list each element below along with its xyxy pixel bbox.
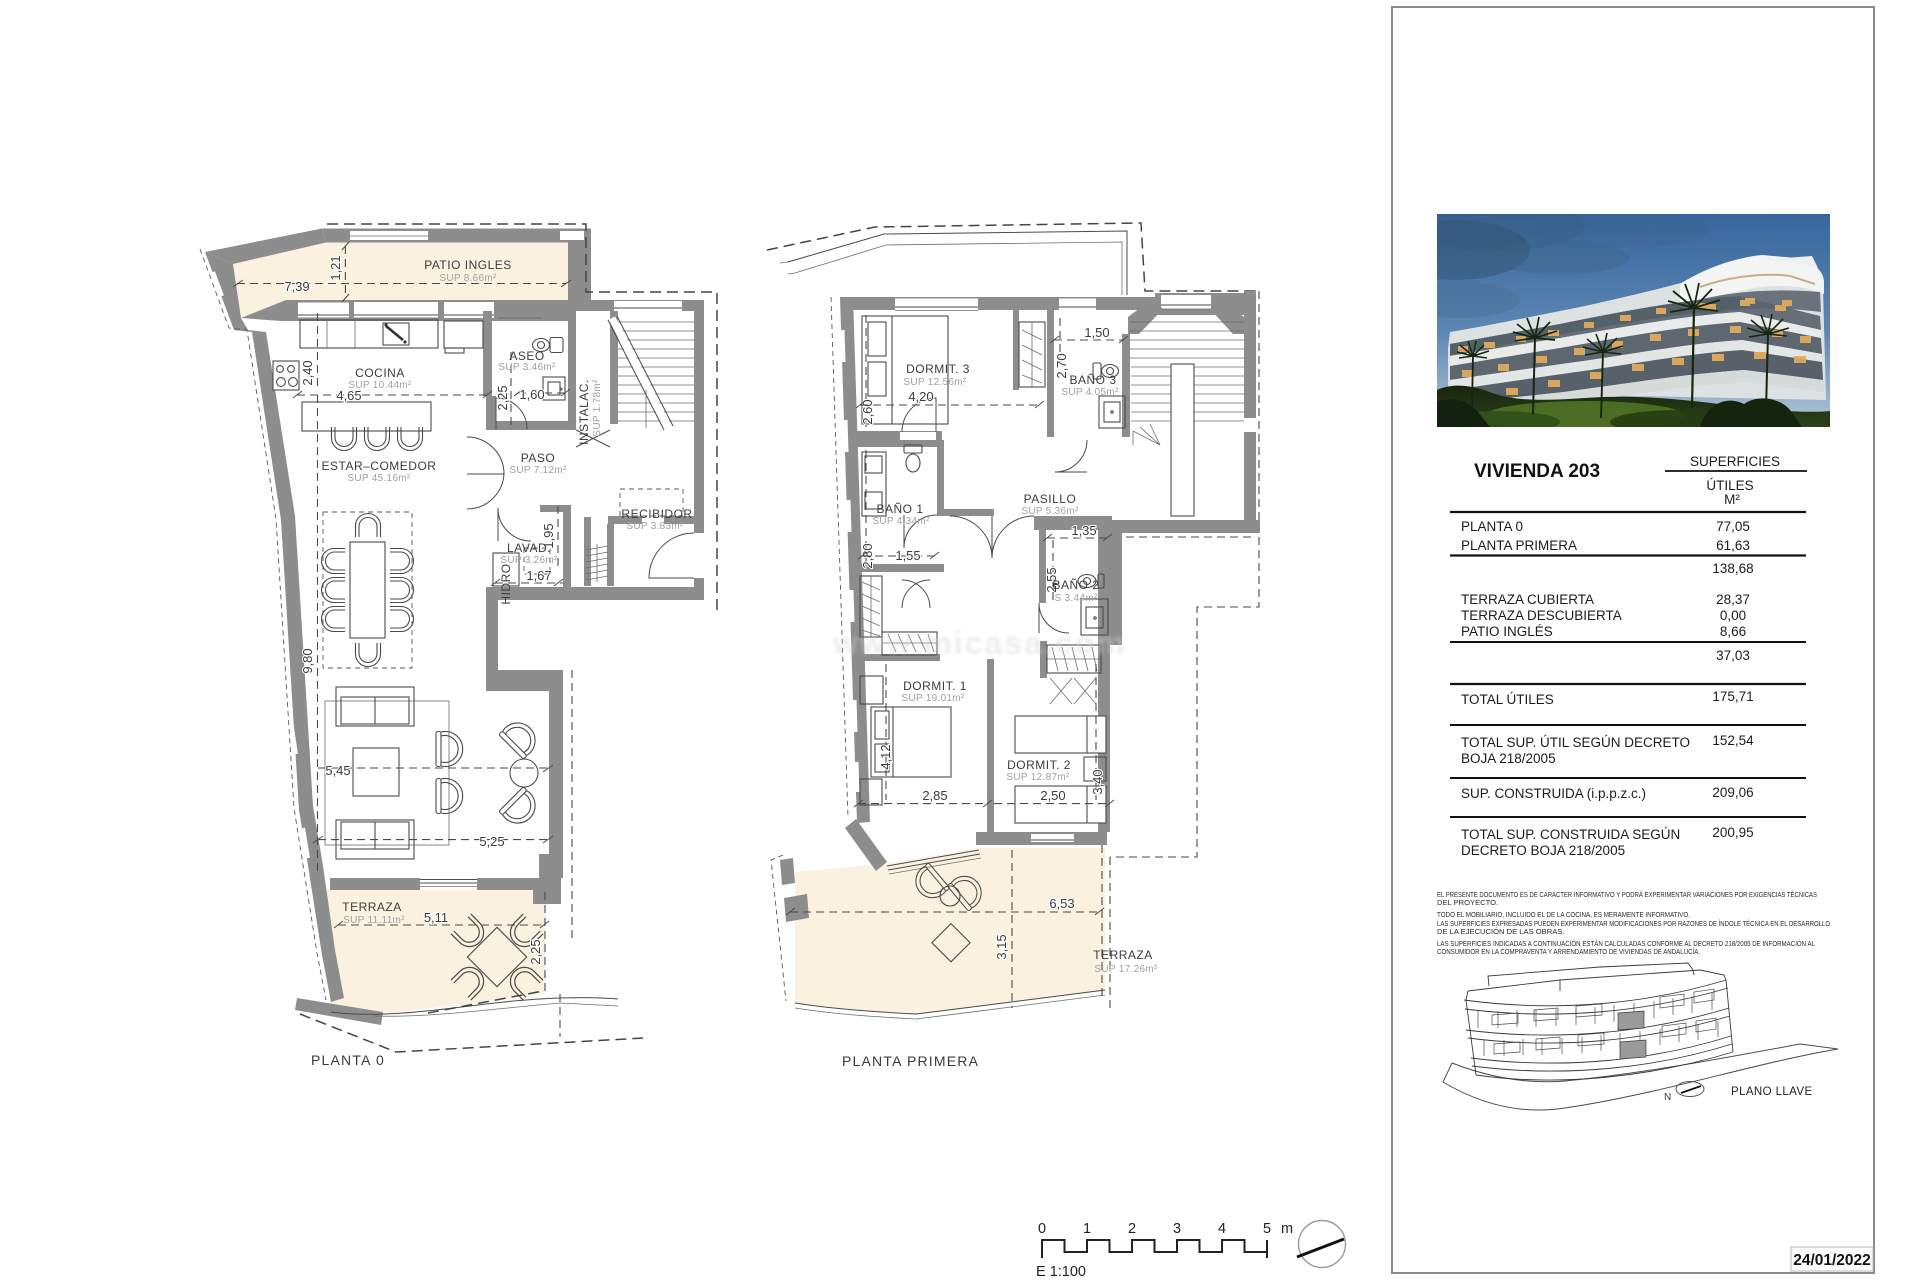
svg-text:RECIBIDOR: RECIBIDOR <box>621 507 692 521</box>
svg-text:1,21: 1,21 <box>328 255 343 280</box>
svg-text:DORMIT. 1: DORMIT. 1 <box>903 679 967 693</box>
svg-text:138,68: 138,68 <box>1712 561 1753 576</box>
svg-text:209,06: 209,06 <box>1712 785 1753 800</box>
svg-text:3,40: 3,40 <box>1090 769 1105 794</box>
svg-text:9,80: 9,80 <box>300 648 315 673</box>
svg-text:M²: M² <box>1724 492 1740 507</box>
svg-text:77,05: 77,05 <box>1716 519 1750 534</box>
svg-text:1,50: 1,50 <box>1084 325 1109 340</box>
svg-text:2,40: 2,40 <box>300 360 315 385</box>
svg-text:TERRAZA: TERRAZA <box>342 900 402 914</box>
svg-text:TERRAZA DESCUBIERTA: TERRAZA DESCUBIERTA <box>1461 608 1622 623</box>
svg-text:4: 4 <box>1218 1221 1226 1237</box>
svg-text:SUP 10.44m²: SUP 10.44m² <box>348 380 412 391</box>
svg-text:TERRAZA: TERRAZA <box>1093 948 1153 962</box>
svg-text:0: 0 <box>1038 1221 1046 1237</box>
svg-text:COCINA: COCINA <box>355 366 405 380</box>
svg-text:SUP 12.56m²: SUP 12.56m² <box>903 377 967 388</box>
svg-text:PLANTA PRIMERA: PLANTA PRIMERA <box>1461 538 1577 553</box>
svg-text:TOTAL ÚTILES: TOTAL ÚTILES <box>1461 692 1554 707</box>
svg-text:PATIO INGLÉS: PATIO INGLÉS <box>1461 624 1553 639</box>
svg-text:PLANO LLAVE: PLANO LLAVE <box>1731 1086 1813 1098</box>
svg-text:DE LA EJECUCIÓN DE LAS OBRAS.: DE LA EJECUCIÓN DE LAS OBRAS. <box>1437 927 1564 936</box>
svg-text:DEL PROYECTO.: DEL PROYECTO. <box>1437 898 1498 907</box>
svg-text:BOJA 218/2005: BOJA 218/2005 <box>1461 751 1556 766</box>
svg-text:TODO EL MOBILIARIO, INCLUIDO E: TODO EL MOBILIARIO, INCLUIDO EL DE LA CO… <box>1437 910 1690 919</box>
svg-text:BAÑO 3: BAÑO 3 <box>1069 373 1116 387</box>
svg-text:VIVIENDA 203: VIVIENDA 203 <box>1474 461 1600 482</box>
svg-text:SUP 11.11m²: SUP 11.11m² <box>343 915 405 926</box>
svg-text:1,60: 1,60 <box>519 387 544 402</box>
svg-text:2,50: 2,50 <box>1040 788 1065 803</box>
svg-text:152,54: 152,54 <box>1712 733 1754 748</box>
svg-text:3: 3 <box>1173 1221 1181 1237</box>
svg-text:0,00: 0,00 <box>1720 608 1746 623</box>
svg-text:5,11: 5,11 <box>424 910 448 925</box>
svg-text:SUP 1.78m²: SUP 1.78m² <box>592 379 603 437</box>
svg-text:TOTAL SUP. ÚTIL SEGÚN DECRETO: TOTAL SUP. ÚTIL SEGÚN DECRETO <box>1461 735 1690 750</box>
svg-text:5,45: 5,45 <box>325 763 350 778</box>
svg-text:SUPERFICIES: SUPERFICIES <box>1690 454 1780 469</box>
svg-text:SUP 12.87m²: SUP 12.87m² <box>1006 772 1070 783</box>
svg-text:SUP 17.26m²: SUP 17.26m² <box>1094 964 1158 975</box>
svg-text:LAVAD.: LAVAD. <box>507 541 551 555</box>
svg-text:CONSUMIDOR EN LA COMPRAVENTA Y: CONSUMIDOR EN LA COMPRAVENTA Y ARRENDAMI… <box>1437 947 1700 956</box>
svg-text:DORMIT. 3: DORMIT. 3 <box>906 362 970 376</box>
svg-text:2,25: 2,25 <box>495 385 510 410</box>
svg-text:37,03: 37,03 <box>1716 648 1750 663</box>
svg-text:SUP. CONSTRUIDA (i.p.p.z.c.): SUP. CONSTRUIDA (i.p.p.z.c.) <box>1461 786 1646 801</box>
svg-text:HIDRO: HIDRO <box>499 563 513 604</box>
svg-text:6,53: 6,53 <box>1049 896 1074 911</box>
svg-text:SUP 19.01m²: SUP 19.01m² <box>901 693 965 704</box>
svg-text:SUP 3.83m²: SUP 3.83m² <box>626 521 684 532</box>
svg-text:TOTAL SUP. CONSTRUIDA SEGÚN: TOTAL SUP. CONSTRUIDA SEGÚN <box>1461 827 1680 842</box>
svg-text:SUP 45.16m²: SUP 45.16m² <box>347 473 411 484</box>
svg-text:ESTAR–COMEDOR: ESTAR–COMEDOR <box>322 459 437 473</box>
svg-text:ASEO: ASEO <box>509 349 544 363</box>
svg-text:PATIO INGLES: PATIO INGLES <box>424 258 512 272</box>
svg-text:BAÑO 2: BAÑO 2 <box>1052 578 1099 592</box>
svg-text:PLANTA 0: PLANTA 0 <box>1461 519 1523 534</box>
svg-text:m: m <box>1281 1221 1293 1237</box>
svg-text:SUP 8.66m²: SUP 8.66m² <box>439 273 497 284</box>
svg-text:2,25: 2,25 <box>528 939 543 964</box>
svg-text:www.micasa.com: www.micasa.com <box>832 625 1127 661</box>
svg-text:SUP 4.34m²: SUP 4.34m² <box>872 516 930 527</box>
svg-text:5,25: 5,25 <box>479 834 504 849</box>
svg-text:PASILLO: PASILLO <box>1024 492 1077 506</box>
svg-text:1,55: 1,55 <box>895 548 920 563</box>
svg-text:E 1:100: E 1:100 <box>1036 1264 1086 1280</box>
svg-text:BAÑO 1: BAÑO 1 <box>876 502 923 516</box>
svg-text:4,12: 4,12 <box>878 744 893 769</box>
svg-text:1: 1 <box>1083 1221 1091 1237</box>
svg-text:PLANTA PRIMERA: PLANTA PRIMERA <box>842 1053 979 1069</box>
svg-text:61,63: 61,63 <box>1716 538 1750 553</box>
svg-text:SUP 7.12m²: SUP 7.12m² <box>509 465 567 476</box>
svg-text:200,95: 200,95 <box>1712 825 1753 840</box>
svg-text:2: 2 <box>1128 1221 1136 1237</box>
svg-text:7,39: 7,39 <box>284 279 309 294</box>
svg-text:24/01/2022: 24/01/2022 <box>1793 1252 1871 1269</box>
svg-text:S 3.44m²: S 3.44m² <box>1055 593 1098 604</box>
svg-text:N: N <box>1664 1092 1671 1103</box>
svg-text:3,15: 3,15 <box>994 934 1009 959</box>
svg-text:SUP 5.36m²: SUP 5.36m² <box>1021 506 1079 517</box>
svg-text:2,70: 2,70 <box>1054 353 1069 378</box>
svg-text:TERRAZA CUBIERTA: TERRAZA CUBIERTA <box>1461 592 1594 607</box>
svg-text:5: 5 <box>1263 1221 1271 1237</box>
svg-text:SUP 4.05m²: SUP 4.05m² <box>1061 387 1119 398</box>
svg-text:175,71: 175,71 <box>1712 689 1753 704</box>
svg-text:DORMIT. 2: DORMIT. 2 <box>1007 758 1071 772</box>
svg-text:2,85: 2,85 <box>922 788 947 803</box>
svg-text:ÚTILES: ÚTILES <box>1706 478 1753 493</box>
svg-text:PLANTA 0: PLANTA 0 <box>311 1052 385 1068</box>
svg-text:1,67: 1,67 <box>526 568 551 583</box>
svg-text:28,37: 28,37 <box>1716 592 1750 607</box>
svg-text:SUP 3.46m²: SUP 3.46m² <box>498 362 556 373</box>
svg-text:1,35: 1,35 <box>1071 523 1096 538</box>
svg-text:INSTALAC.: INSTALAC. <box>577 379 591 445</box>
svg-text:DECRETO BOJA 218/2005: DECRETO BOJA 218/2005 <box>1461 843 1625 858</box>
svg-text:8,66: 8,66 <box>1720 624 1746 639</box>
svg-text:PASO: PASO <box>521 451 555 465</box>
svg-text:4,20: 4,20 <box>908 389 933 404</box>
